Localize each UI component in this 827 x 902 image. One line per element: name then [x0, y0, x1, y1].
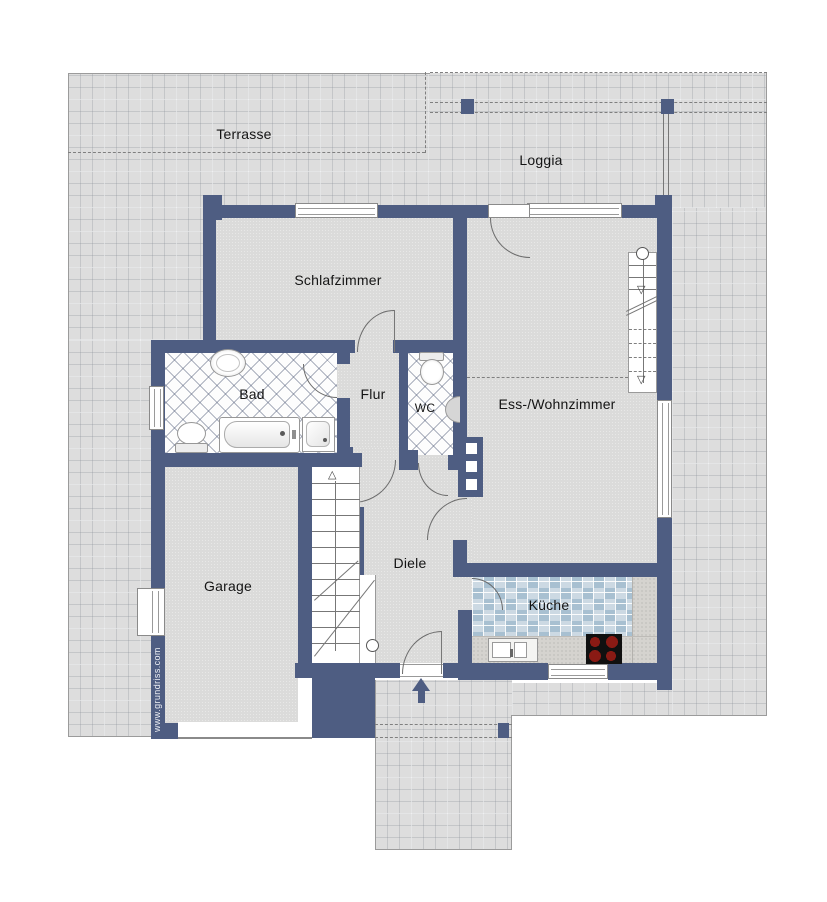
- wall-segment: [298, 467, 312, 663]
- path-overhang-dashed: [375, 724, 512, 725]
- loggia-door-opening: [488, 204, 530, 218]
- kitchen-sink: [488, 638, 538, 662]
- shower-tray: [302, 417, 335, 452]
- shelf-niche: [466, 461, 477, 472]
- label-diele: Diele: [394, 555, 427, 571]
- stair-tread: [312, 611, 360, 612]
- wall-segment: [203, 205, 216, 353]
- washbasin-bad: [210, 349, 246, 377]
- wall-segment: [443, 663, 458, 678]
- roof-edge-dashed: [430, 112, 767, 113]
- stair-tread: [312, 515, 360, 516]
- wall-segment: [657, 205, 672, 400]
- kitchen-faucet: [510, 649, 513, 657]
- wall-segment: [399, 352, 408, 455]
- label-garage: Garage: [204, 578, 252, 594]
- stair-tread: [312, 531, 360, 532]
- path-overhang-dashed: [375, 737, 512, 738]
- window-schlafzimmer: [295, 203, 378, 218]
- staircase-upper: ▽ ▽: [628, 252, 657, 393]
- wall-segment: [453, 540, 467, 563]
- wall-segment: [151, 340, 355, 353]
- terrace-tiles-left-upper: [68, 208, 203, 340]
- pillar: [661, 99, 674, 114]
- pillar: [461, 99, 474, 114]
- window-kueche: [548, 664, 608, 679]
- kitchen-sink-basin: [514, 642, 527, 658]
- stair-walk-line: [643, 257, 644, 383]
- wall-segment: [295, 663, 400, 678]
- loggia-railing: [663, 114, 664, 195]
- entry-path-tiles: [375, 680, 512, 850]
- terrace-tiles-bottom-strip: [512, 683, 672, 716]
- kitchen-sink-basin: [492, 642, 511, 658]
- toilet-bad: [177, 422, 206, 445]
- loggia-railing: [668, 114, 669, 195]
- wall-segment: [378, 205, 488, 218]
- terrace-edge: [766, 73, 767, 716]
- gallery-dashed-line: [467, 377, 628, 378]
- roof-edge-dashed: [68, 152, 425, 153]
- stair-direction-arrow: ▽: [637, 285, 645, 296]
- terrace-tiles-left-lower: [68, 340, 151, 737]
- window-bad: [149, 386, 164, 430]
- terrace-edge: [511, 715, 767, 716]
- wall-segment: [458, 610, 472, 665]
- kitchen-counter-line: [472, 636, 658, 637]
- terrace-edge: [68, 73, 430, 74]
- stair-tread: [312, 499, 360, 500]
- wall-segment: [453, 563, 658, 577]
- window-wohnzimmer-nord: [527, 203, 622, 218]
- path-edge: [375, 680, 376, 850]
- stair-direction-arrow: ▽: [637, 375, 645, 386]
- label-wohnzimmer: Ess-/Wohnzimmer: [498, 396, 615, 412]
- door-leaf: [394, 310, 395, 352]
- wall-segment: [151, 453, 362, 467]
- roof-edge-dashed: [430, 102, 767, 103]
- window-wohnzimmer-ost: [657, 400, 672, 518]
- label-terrasse: Terrasse: [216, 126, 271, 142]
- stair-tread: [312, 547, 360, 548]
- wall-segment: [337, 352, 350, 364]
- wall-segment: [657, 518, 672, 690]
- stair-tread: [312, 643, 360, 644]
- kitchen-counter-line: [632, 577, 633, 664]
- stair-pole: [366, 639, 379, 652]
- label-kueche: Küche: [529, 597, 570, 613]
- wall-segment: [216, 205, 295, 218]
- label-flur: Flur: [361, 386, 386, 402]
- entry-arrow-stem: [418, 690, 425, 703]
- shelf-niche: [466, 443, 477, 454]
- roof-edge-dashed: [425, 72, 426, 153]
- wall-segment: [312, 678, 375, 738]
- terrace-tiles-right: [672, 208, 767, 716]
- stair-cut-line: [626, 296, 657, 312]
- wall-segment: [622, 205, 658, 218]
- stair-walk-line: [335, 481, 336, 651]
- washbasin-inner: [216, 354, 240, 372]
- door-leaf: [441, 631, 442, 674]
- bathtub-drain: [280, 431, 285, 436]
- shower-drain: [323, 438, 327, 442]
- wall-segment: [458, 663, 548, 680]
- stair-tread: [312, 483, 360, 484]
- watermark: www.grundriss.com: [150, 636, 166, 732]
- room-garage: [165, 467, 298, 723]
- bathtub-faucet: [292, 430, 296, 439]
- shower-inner: [306, 421, 330, 447]
- wall-segment: [608, 663, 658, 680]
- toilet-bad-tank: [175, 443, 208, 453]
- label-loggia: Loggia: [519, 152, 562, 168]
- bathtub: [219, 417, 300, 453]
- stair-pole: [636, 247, 649, 260]
- floor-plan: ▽ ▽ △: [0, 0, 827, 902]
- garage-door: [178, 722, 312, 739]
- stair-direction-arrow: △: [328, 470, 336, 481]
- toilet-wc: [420, 359, 444, 385]
- roof-edge-dashed: [430, 72, 767, 73]
- window-garage: [137, 588, 165, 636]
- shelf-niche: [466, 479, 477, 490]
- label-wc: WC: [415, 401, 435, 415]
- terrace-edge: [68, 736, 152, 737]
- terrace-edge: [68, 73, 69, 737]
- label-bad: Bad: [239, 386, 265, 402]
- label-schlafzimmer: Schlafzimmer: [294, 272, 381, 288]
- cooktop: [586, 634, 622, 664]
- wall-segment: [399, 450, 418, 470]
- path-pillar: [498, 723, 509, 738]
- path-edge: [375, 849, 512, 850]
